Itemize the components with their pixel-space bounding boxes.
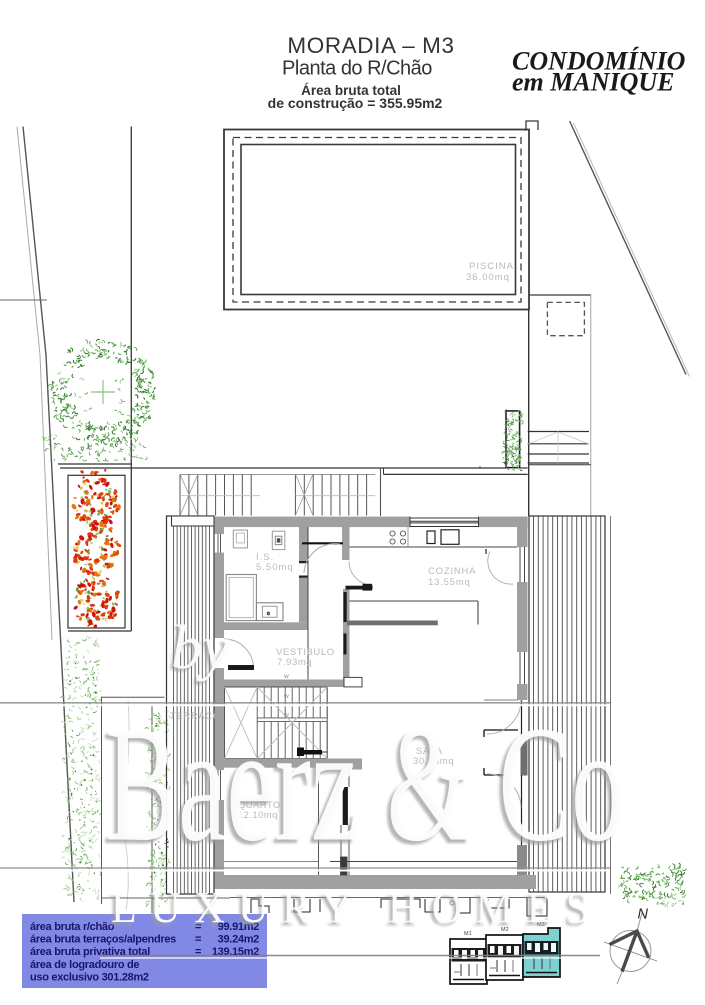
svg-text:by: by xyxy=(171,614,230,682)
svg-text:em MANIQUE: em MANIQUE xyxy=(512,68,675,97)
svg-text:de construção = 355.95m2: de construção = 355.95m2 xyxy=(268,95,443,111)
svg-text:LUXURY HOMES: LUXURY HOMES xyxy=(111,883,603,932)
svg-text:área bruta terraços/alpendres: área bruta terraços/alpendres xyxy=(30,934,176,946)
svg-text:COZINHA: COZINHA xyxy=(428,566,476,577)
svg-text:13.55mq: 13.55mq xyxy=(428,577,471,588)
svg-text:5.50mq: 5.50mq xyxy=(256,562,294,573)
svg-text:área bruta r/chão: área bruta r/chão xyxy=(30,921,115,933)
svg-text:N: N xyxy=(638,907,649,923)
svg-text:7.93mq: 7.93mq xyxy=(277,657,312,668)
svg-text:Planta do R/Chão: Planta do R/Chão xyxy=(282,58,432,80)
svg-text:36.00mq: 36.00mq xyxy=(466,272,510,283)
svg-text:área de logradouro de: área de logradouro de xyxy=(30,959,139,971)
svg-text:w: w xyxy=(283,673,289,680)
svg-text:uso exclusivo 301.28m2: uso exclusivo 301.28m2 xyxy=(30,972,149,984)
svg-text:o: o xyxy=(267,611,270,617)
svg-text:39.24m2: 39.24m2 xyxy=(218,934,260,946)
svg-text:PISCINA: PISCINA xyxy=(469,261,514,272)
svg-text:=: = xyxy=(195,934,201,946)
svg-text:Baerz & Co: Baerz & Co xyxy=(106,692,626,876)
svg-text:MORADIA – M3: MORADIA – M3 xyxy=(287,33,454,58)
